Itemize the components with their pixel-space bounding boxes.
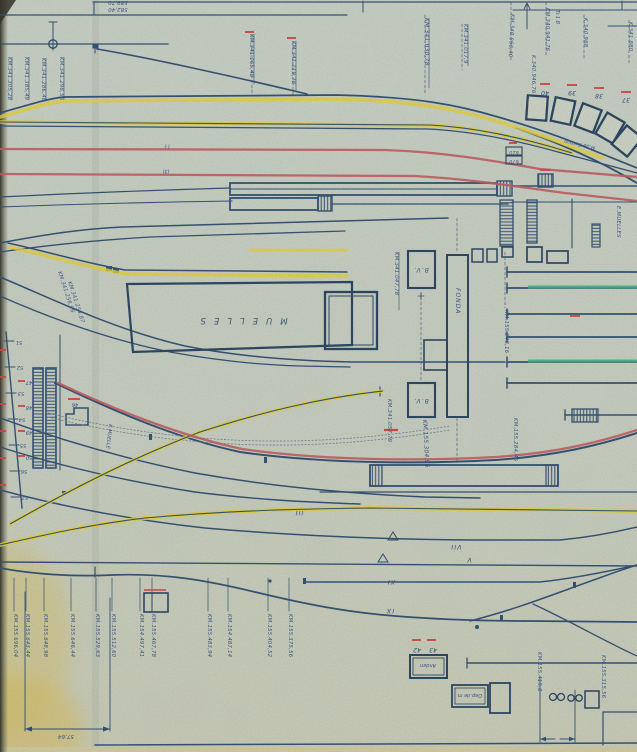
track-plan-svg: 589,70 582,40 KM.341.305,28 KM.341.385,4… (0, 0, 637, 752)
paper-grain-overlay (0, 0, 637, 752)
scanned-track-plan: 589,70 582,40 KM.341.305,28 KM.341.385,4… (0, 0, 637, 752)
